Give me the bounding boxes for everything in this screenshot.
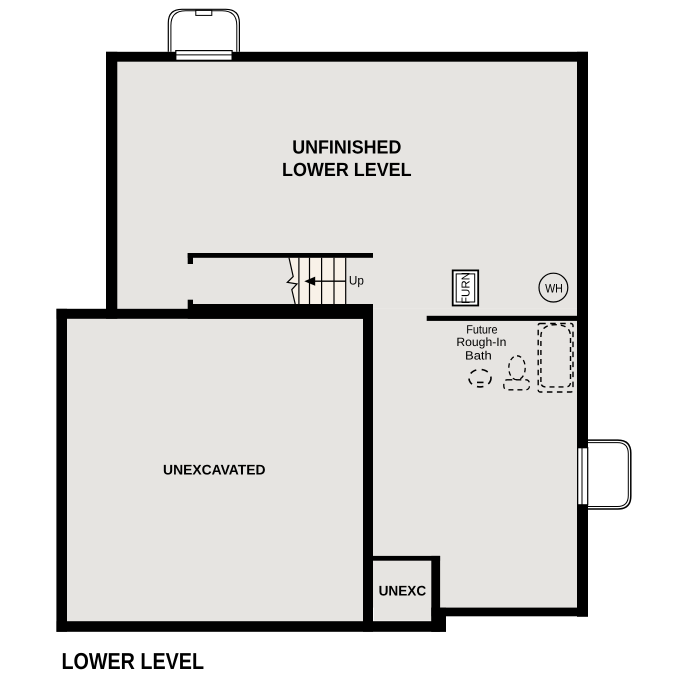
svg-text:Rough-In: Rough-In — [456, 335, 506, 349]
svg-text:UNEXCAVATED: UNEXCAVATED — [163, 461, 266, 477]
svg-text:LOWER LEVEL: LOWER LEVEL — [62, 648, 205, 674]
svg-text:UNEXC: UNEXC — [379, 582, 427, 598]
svg-text:UNFINISHED: UNFINISHED — [292, 138, 401, 159]
svg-text:Bath: Bath — [465, 349, 492, 363]
svg-text:Up: Up — [349, 274, 364, 288]
svg-text:FURN: FURN — [461, 272, 473, 304]
svg-text:WH: WH — [545, 282, 563, 296]
svg-text:LOWER LEVEL: LOWER LEVEL — [282, 160, 412, 181]
